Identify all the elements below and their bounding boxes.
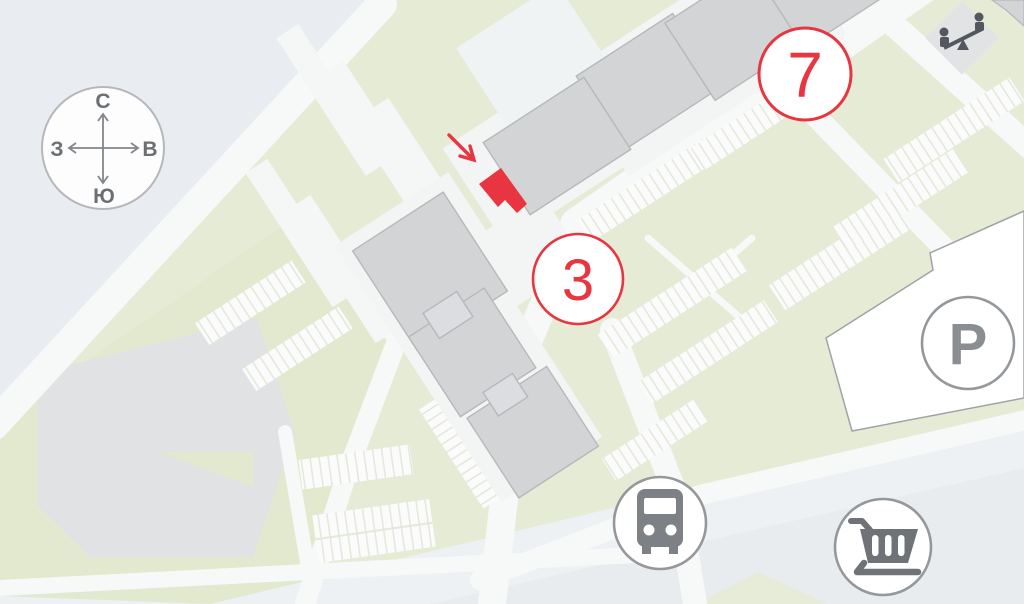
shopping-badge bbox=[835, 499, 931, 595]
building-7-badge[interactable]: 7 bbox=[759, 28, 851, 120]
parking-badge: P bbox=[922, 297, 1014, 389]
map-canvas: С Ю З В 7 3 P bbox=[0, 0, 1024, 604]
building-7-number: 7 bbox=[787, 39, 823, 111]
compass-east-label: В bbox=[142, 138, 157, 161]
compass: С Ю З В bbox=[42, 87, 164, 209]
bus-icon bbox=[637, 489, 683, 554]
site-plan-map: С Ю З В 7 3 P bbox=[0, 0, 1024, 604]
building-3-number: 3 bbox=[562, 248, 594, 313]
compass-south-label: Ю bbox=[93, 185, 115, 208]
parking-label: P bbox=[949, 312, 988, 377]
bus-stop-badge bbox=[614, 477, 706, 569]
building-3-badge[interactable]: 3 bbox=[533, 234, 623, 324]
compass-north-label: С bbox=[95, 90, 110, 113]
compass-west-label: З bbox=[50, 138, 63, 161]
